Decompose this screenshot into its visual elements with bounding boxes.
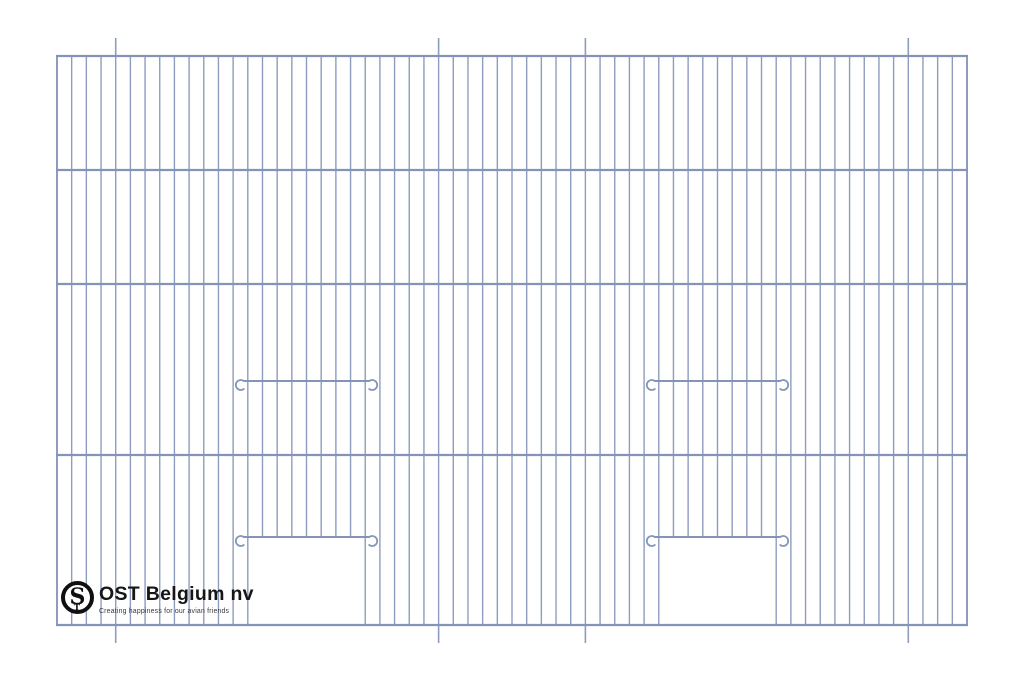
logo-wordmark: OST Belgium nv Creating happiness for ou…: [99, 581, 254, 615]
ost-logo-icon: S T: [61, 581, 94, 614]
logo-block: S T OST Belgium nv Creating happiness fo…: [61, 581, 254, 615]
drawing-canvas: S T OST Belgium nv Creating happiness fo…: [0, 0, 1024, 683]
company-tagline: Creating happiness for our avian friends: [99, 608, 254, 615]
company-name: OST Belgium nv: [99, 585, 254, 605]
logo-monogram-t: T: [74, 604, 80, 613]
